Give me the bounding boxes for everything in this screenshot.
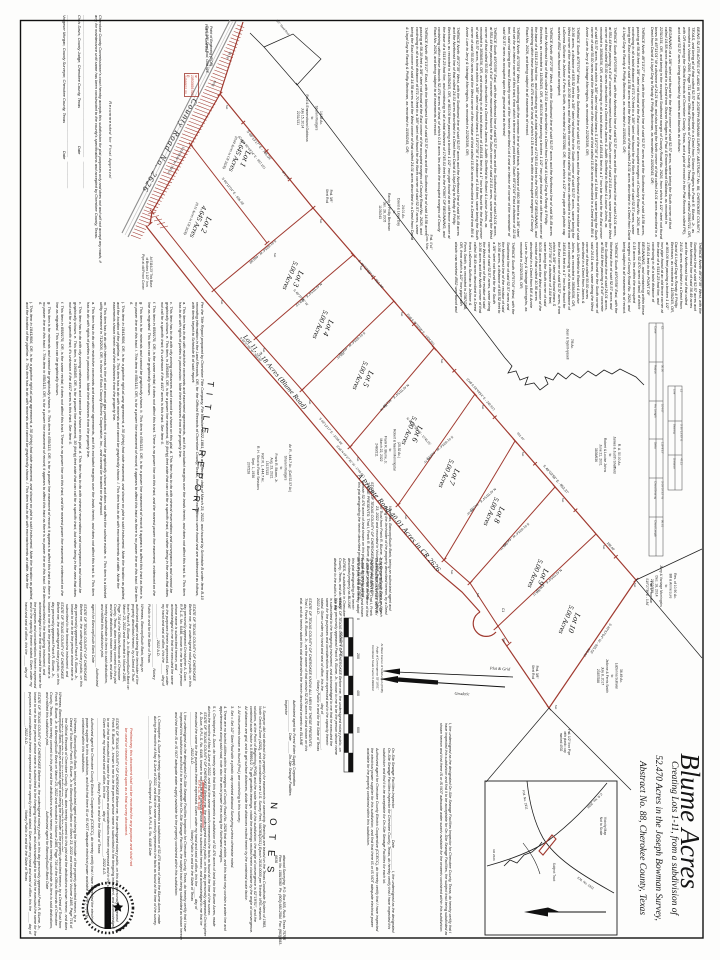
svg-text:An R., 444.7 Ac. (Call 52.57 A: An R., 444.7 Ac. (Call 52.57 Ac) xyxy=(288,444,292,492)
svg-text:2480/211: 2480/211 xyxy=(375,443,379,457)
svg-text:Arc Length: Arc Length xyxy=(654,404,658,418)
svg-text:James & Judith Sheffield: James & Judith Sheffield xyxy=(612,436,616,473)
svg-text:Set: Set xyxy=(319,219,323,224)
svg-text:2231/131: 2231/131 xyxy=(296,111,300,125)
svg-text:T: T xyxy=(205,381,216,388)
svg-text:Chord Bearing: Chord Bearing xyxy=(654,481,658,499)
svg-text:S 40°57'04" W - 935.52': S 40°57'04" W - 935.52' xyxy=(589,623,613,655)
svg-text:to: to xyxy=(608,454,612,457)
svg-text:to: to xyxy=(664,585,668,588)
svg-text:Chord Length: Chord Length xyxy=(654,520,658,537)
svg-text:S19°27'36"E - 1.84': S19°27'36"E - 1.84' xyxy=(645,578,649,606)
svg-text:to: to xyxy=(610,675,614,678)
svg-text:I: I xyxy=(204,392,214,396)
svg-text:104.67: 104.67 xyxy=(661,404,665,413)
svg-text:Set: Set xyxy=(476,593,480,598)
svg-text:to: to xyxy=(388,449,392,452)
svg-text:Set: Set xyxy=(633,583,637,588)
svg-text:C1: C1 xyxy=(501,608,505,612)
svg-text:14.58 Ac.: 14.58 Ac. xyxy=(319,111,323,125)
svg-text:marked 4502: marked 4502 xyxy=(559,733,563,752)
svg-text:At West Corner of Subdivision: At West Corner of Subdivision (POB) xyxy=(380,643,384,692)
svg-text:T: T xyxy=(266,834,277,841)
svg-text:F.M. No. 1911: F.M. No. 1911 xyxy=(521,790,528,810)
svg-text:119°9'33": 119°9'33" xyxy=(661,442,665,454)
svg-text:Steel Rod: Steel Rod xyxy=(531,665,535,679)
svg-text:86.61: 86.61 xyxy=(661,520,665,527)
svg-text:S 49°03'58" E - 551.44': S 49°03'58" E - 551.44' xyxy=(357,259,385,290)
svg-text:Frank R. Blume, Jr.: Frank R. Blume, Jr. xyxy=(384,436,388,464)
svg-text:LaDonna Sullivan: LaDonna Sullivan xyxy=(614,663,618,690)
svg-text:36.49 Ac.: 36.49 Ac. xyxy=(619,669,623,683)
svg-text:S 09°57'33" W: S 09°57'33" W xyxy=(661,481,665,499)
svg-text:Set: Set xyxy=(502,638,506,643)
svg-text:S 69°12'04" E - 636.48': S 69°12'04" E - 636.48' xyxy=(221,177,245,207)
svg-text:to: to xyxy=(310,117,314,120)
svg-text:Set: Set xyxy=(400,312,404,317)
svg-text:July 8, 2017: July 8, 2017 xyxy=(601,667,605,685)
svg-text:L1: L1 xyxy=(680,389,684,393)
svg-text:1/2" Steel Rod: 1/2" Steel Rod xyxy=(275,19,291,37)
svg-text:Not to Scale: Not to Scale xyxy=(599,817,603,836)
svg-text:Set: Set xyxy=(262,348,266,353)
svg-text:7/8 Ac.: 7/8 Ac. xyxy=(570,339,574,349)
svg-text:Geodetic: Geodetic xyxy=(454,691,469,697)
svg-text:F.M. No. 1911: F.M. No. 1911 xyxy=(576,876,595,891)
svg-text:R. H. Stout to Rose Sessions: R. H. Stout to Rose Sessions xyxy=(256,446,260,490)
svg-text:200: 200 xyxy=(356,653,360,659)
svg-text:Jan. 28, 2005: Jan. 28, 2005 xyxy=(383,202,387,223)
svg-text:Jerry & Vantage Morringshs: Jerry & Vantage Morringshs xyxy=(659,565,663,607)
svg-text:Res. of 10.90 Ac.: Res. of 10.90 Ac. xyxy=(673,573,677,599)
svg-text:C1: C1 xyxy=(661,326,665,330)
svg-text:Set: Set xyxy=(356,457,360,462)
svg-text:Sharon Rodgers: Sharon Rodgers xyxy=(283,456,287,481)
svg-text:to: to xyxy=(279,467,283,470)
svg-text:Set: Set xyxy=(404,515,408,520)
svg-text:600: 600 xyxy=(356,727,360,733)
svg-text:400: 400 xyxy=(356,690,360,696)
svg-text:Set: Set xyxy=(359,266,363,271)
svg-text:Set: Set xyxy=(481,405,485,410)
svg-text:S 30°13'35" E: S 30°13'35" E xyxy=(680,424,684,441)
svg-text:Jean & Sybil Hyssell: Jean & Sybil Hyssell xyxy=(565,329,569,360)
svg-text:Set: Set xyxy=(561,498,565,503)
svg-text:Plat & Grid: Plat & Grid xyxy=(489,665,511,671)
svg-text:Delta: Delta xyxy=(654,442,658,449)
svg-text:Sharon Rodgers: Sharon Rodgers xyxy=(314,106,318,131)
svg-text:Paul & Emmerstband Gabbana: Paul & Emmerstband Gabbana xyxy=(305,95,309,142)
svg-text:Dec. 18, 2014: Dec. 18, 2014 xyxy=(655,575,659,596)
svg-text:N: N xyxy=(268,802,279,810)
svg-text:Set: Set xyxy=(602,545,606,550)
svg-text:Aug. 23, 2021: Aug. 23, 2021 xyxy=(270,457,274,478)
svg-text:June 21, 2001: June 21, 2001 xyxy=(599,444,603,466)
svg-text:Pipe at old Fence Corner: Pipe at old Fence Corner xyxy=(141,254,145,290)
svg-text:S 48°13'17" E - 3158.49': S 48°13'17" E - 3158.49' xyxy=(318,417,344,446)
svg-text:(25.52 Ac.): (25.52 Ac.) xyxy=(397,442,401,458)
svg-text:Radius: Radius xyxy=(654,365,658,374)
svg-text:Angle of Convergence 02°19'51: Angle of Convergence 02°19'51" xyxy=(375,646,379,689)
svg-text:O: O xyxy=(267,818,278,826)
svg-text:Distance: Distance xyxy=(673,458,677,469)
svg-text:Combined Scale Factor 0.99991: Combined Scale Factor 0.99991/2 xyxy=(371,645,375,691)
svg-text:Set: Set xyxy=(440,359,444,364)
svg-text:Set: Set xyxy=(273,253,277,258)
svg-text:Subject Tract: Subject Tract xyxy=(552,863,556,882)
svg-text:Set: Set xyxy=(308,400,312,405)
svg-text:Curve: Curve xyxy=(654,326,658,334)
svg-text:R. A. 50.00 Ac.: R. A. 50.00 Ac. xyxy=(617,444,621,466)
svg-text:50.00: 50.00 xyxy=(661,365,665,372)
svg-text:Rd 2626: Rd 2626 xyxy=(492,849,496,861)
svg-text:1517/133: 1517/133 xyxy=(265,461,269,475)
svg-text:Bearing: Bearing xyxy=(673,424,677,434)
svg-text:July 15, 2014: July 15, 2014 xyxy=(301,108,305,128)
svg-text:C.R. No. 2626: C.R. No. 2626 xyxy=(586,792,603,809)
svg-text:Lot 11, 3.18 Acres (Blume Road: Lot 11, 3.18 Acres (Blume Road) xyxy=(241,333,308,411)
svg-text:Line: Line xyxy=(673,389,677,395)
svg-text:207/228: 207/228 xyxy=(247,462,251,474)
svg-text:Bill & Annie Lure: Bill & Annie Lure xyxy=(668,574,672,599)
svg-text:Set: Set xyxy=(554,705,558,710)
svg-text:S 41°03'54" W - 660.96': S 41°03'54" W - 660.96' xyxy=(248,239,277,265)
svg-text:1105/243: 1105/243 xyxy=(378,205,382,219)
svg-text:551.44': 551.44' xyxy=(516,431,526,441)
svg-text:(Call S 58°03'54" E - 249.91'): (Call S 58°03'54" E - 249.91') xyxy=(466,377,496,411)
svg-text:Set: Set xyxy=(450,570,454,575)
svg-text:Randy & Phillip Beckman: Randy & Phillip Beckman xyxy=(387,193,391,231)
svg-text:Set: Set xyxy=(521,452,525,457)
svg-text:2232/338: 2232/338 xyxy=(650,579,654,593)
svg-text:Set: Set xyxy=(225,105,229,110)
svg-text:Set: Set xyxy=(220,300,224,305)
svg-text:Robert & Louise Johns: Robert & Louise Johns xyxy=(603,438,607,473)
svg-text:Frank R. Blume, Jr.: Frank R. Blume, Jr. xyxy=(274,453,278,482)
svg-text:March 22, 2022: March 22, 2022 xyxy=(379,439,383,462)
svg-text:0: 0 xyxy=(356,618,360,620)
svg-text:2387/288: 2387/288 xyxy=(596,669,600,683)
svg-text:Robert & Naomi Morningstar: Robert & Naomi Morningstar xyxy=(393,429,397,472)
svg-text:(Call S 49°03'58" E - 1404.81': (Call S 49°03'58" E - 1404.81') xyxy=(406,313,436,346)
svg-text:Ref: R. L. 444.7 Ac.: Ref: R. L. 444.7 Ac. xyxy=(260,453,264,482)
svg-text:Steel Rod: Steel Rod xyxy=(325,189,329,203)
svg-text:JeAnne & Ferris Smith: JeAnne & Ferris Smith xyxy=(605,659,609,693)
svg-text:S 49°03'58" E - 853.37': S 49°03'58" E - 853.37' xyxy=(542,464,570,495)
svg-text:3836/636: 3836/636 xyxy=(594,448,598,462)
svg-text:T: T xyxy=(202,404,213,411)
svg-text:47.11: 47.11 xyxy=(680,458,684,465)
svg-text:Sept. 1, 1936: Sept. 1, 1936 xyxy=(251,458,255,478)
